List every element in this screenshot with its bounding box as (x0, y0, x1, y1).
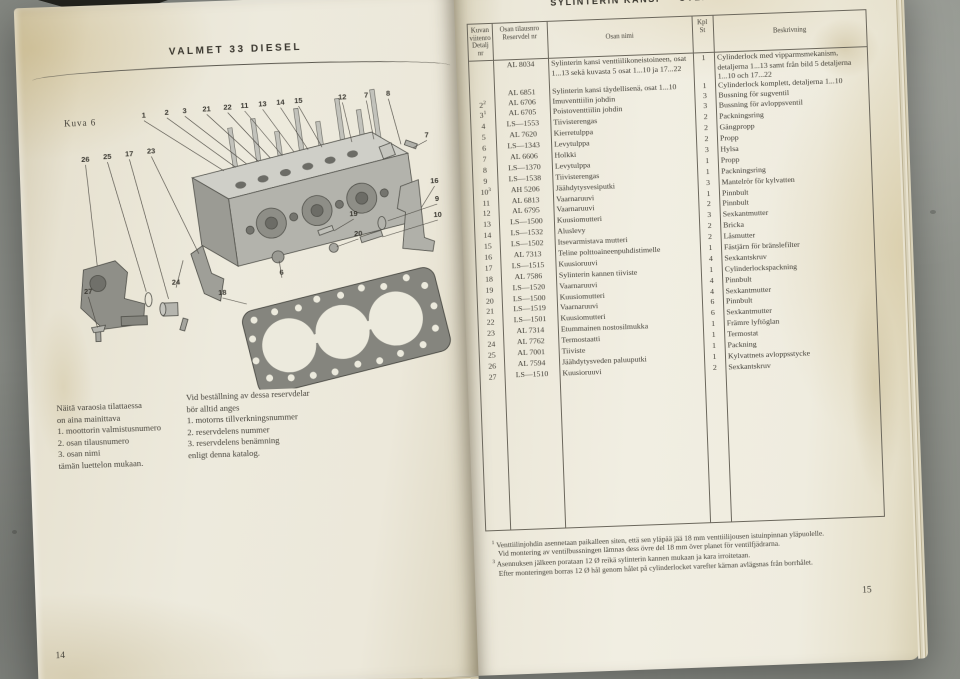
callout-number: 14 (276, 98, 285, 107)
callout-number: 8 (386, 89, 390, 98)
parts-table: Kuvan viitenro Detalj nr Osan tilausnro … (467, 9, 885, 531)
cell-quantity: 1 (697, 156, 718, 168)
parts-table-body: AL 8034 Sylinterin kansi venttiilikoneis… (469, 48, 878, 383)
open-book: VALMET 33 DIESEL Kuva 6 (14, 0, 920, 679)
right-page-number: 15 (862, 585, 872, 595)
callout-number: 26 (81, 155, 90, 164)
cylinder-head-body (183, 86, 420, 271)
header-name: Osan nimi (547, 30, 692, 45)
cell-quantity: 1 (697, 166, 718, 178)
callout-line (185, 114, 247, 166)
callout-line (223, 297, 247, 305)
cell-part-number: AL 8034 (493, 59, 549, 89)
callout-number: 10 (433, 210, 442, 219)
callout-line (86, 165, 98, 266)
footnotes: 1 Venttiilinjohdin asennetaan paikalleen… (488, 524, 909, 578)
cell-quantity: 6 (702, 297, 723, 309)
header-qty: Kpl St (692, 18, 714, 51)
callout-number: 12 (338, 92, 347, 101)
callout-number: 6 (279, 268, 283, 277)
left-page-number: 14 (55, 651, 65, 661)
cell-quantity: 3 (696, 145, 717, 157)
small-parts-left (79, 245, 226, 342)
right-page-title: SYLINTERIN KANSI — CYLINDERLOCK (454, 0, 866, 11)
cell-quantity: 4 (701, 275, 722, 287)
cell-quantity: 3 (699, 210, 720, 222)
cell-ref: 27 (480, 370, 504, 382)
callout-number: 25 (103, 152, 112, 161)
callout-number: 21 (202, 104, 211, 113)
callout-number: 24 (172, 277, 181, 286)
callout-number: 3 (182, 106, 186, 115)
callout-number: 18 (218, 288, 227, 297)
callout-line (421, 186, 436, 207)
cylinder-head-diagram: 1232122111314151278262517237169101920627… (25, 81, 460, 398)
cell-quantity: 1 (703, 319, 724, 331)
callout-number: 2 (164, 108, 168, 117)
cell-quantity: 1 (700, 243, 721, 255)
cell-quantity: 4 (700, 254, 721, 266)
callout-line (388, 98, 401, 144)
callout-number: 17 (125, 149, 134, 158)
callout-line (144, 118, 224, 174)
callout-number: 16 (430, 176, 439, 185)
cell-quantity: 3 (694, 90, 715, 102)
callout-line (151, 155, 199, 256)
callout-number: 9 (435, 194, 439, 203)
cell-quantity: 2 (696, 134, 717, 146)
cell-quantity: 4 (701, 286, 722, 298)
photo-background: VALMET 33 DIESEL Kuva 6 (0, 0, 960, 679)
callout-number: 20 (354, 229, 363, 238)
callout-number: 15 (294, 96, 303, 105)
callout-number: 11 (240, 101, 248, 110)
cell-quantity: 2 (699, 221, 720, 233)
cell-quantity: 2 (695, 123, 716, 135)
callout-number: 13 (258, 99, 267, 108)
floor-speck (930, 210, 936, 214)
left-page: VALMET 33 DIESEL Kuva 6 (14, 0, 479, 679)
header-ref: Kuvan viitenro Detalj nr (468, 26, 493, 59)
callout-number: 7 (364, 90, 368, 99)
cell-quantity: 1 (703, 330, 724, 342)
ordering-note-finnish: Näitä varaosia tilattaessaon aina mainit… (56, 399, 162, 472)
cell-quantity: 1 (704, 352, 725, 364)
cell-quantity: 6 (702, 308, 723, 320)
ordering-notes: Näitä varaosia tilattaessaon aina mainit… (56, 389, 440, 472)
callout-number: 23 (147, 146, 156, 155)
cell-ref (469, 61, 494, 90)
cell-quantity: 2 (704, 362, 725, 374)
cell-part-number: LS—1510 (504, 368, 559, 381)
ordering-note-swedish: Vid beställning av dessa reservdelarbör … (186, 388, 312, 467)
callout-line (167, 115, 236, 169)
cell-quantity: 1 (698, 188, 719, 200)
cell-quantity: 3 (695, 101, 716, 113)
cell-quantity: 1 (703, 341, 724, 353)
cell-quantity: 1 (693, 53, 715, 82)
header-part: Osan tilausnro Reservdel nr (492, 24, 548, 58)
head-gasket (240, 265, 453, 397)
header-desc: Beskrivning (713, 24, 866, 39)
floor-speck (12, 530, 17, 534)
left-page-title: VALMET 33 DIESEL (15, 36, 455, 63)
cell-quantity: 3 (697, 177, 718, 189)
callout-number: 22 (223, 102, 232, 111)
right-page: SYLINTERIN KANSI — CYLINDERLOCK Kuvan vi… (453, 0, 920, 676)
callout-number: 1 (142, 111, 146, 120)
callout-number: 27 (84, 287, 93, 296)
callout-number: 19 (349, 209, 358, 218)
cell-quantity: 2 (698, 199, 719, 211)
callout-number: 7 (424, 130, 428, 139)
cell-quantity: 2 (695, 112, 716, 124)
cell-quantity: 1 (701, 264, 722, 276)
cell-quantity: 2 (699, 232, 720, 244)
